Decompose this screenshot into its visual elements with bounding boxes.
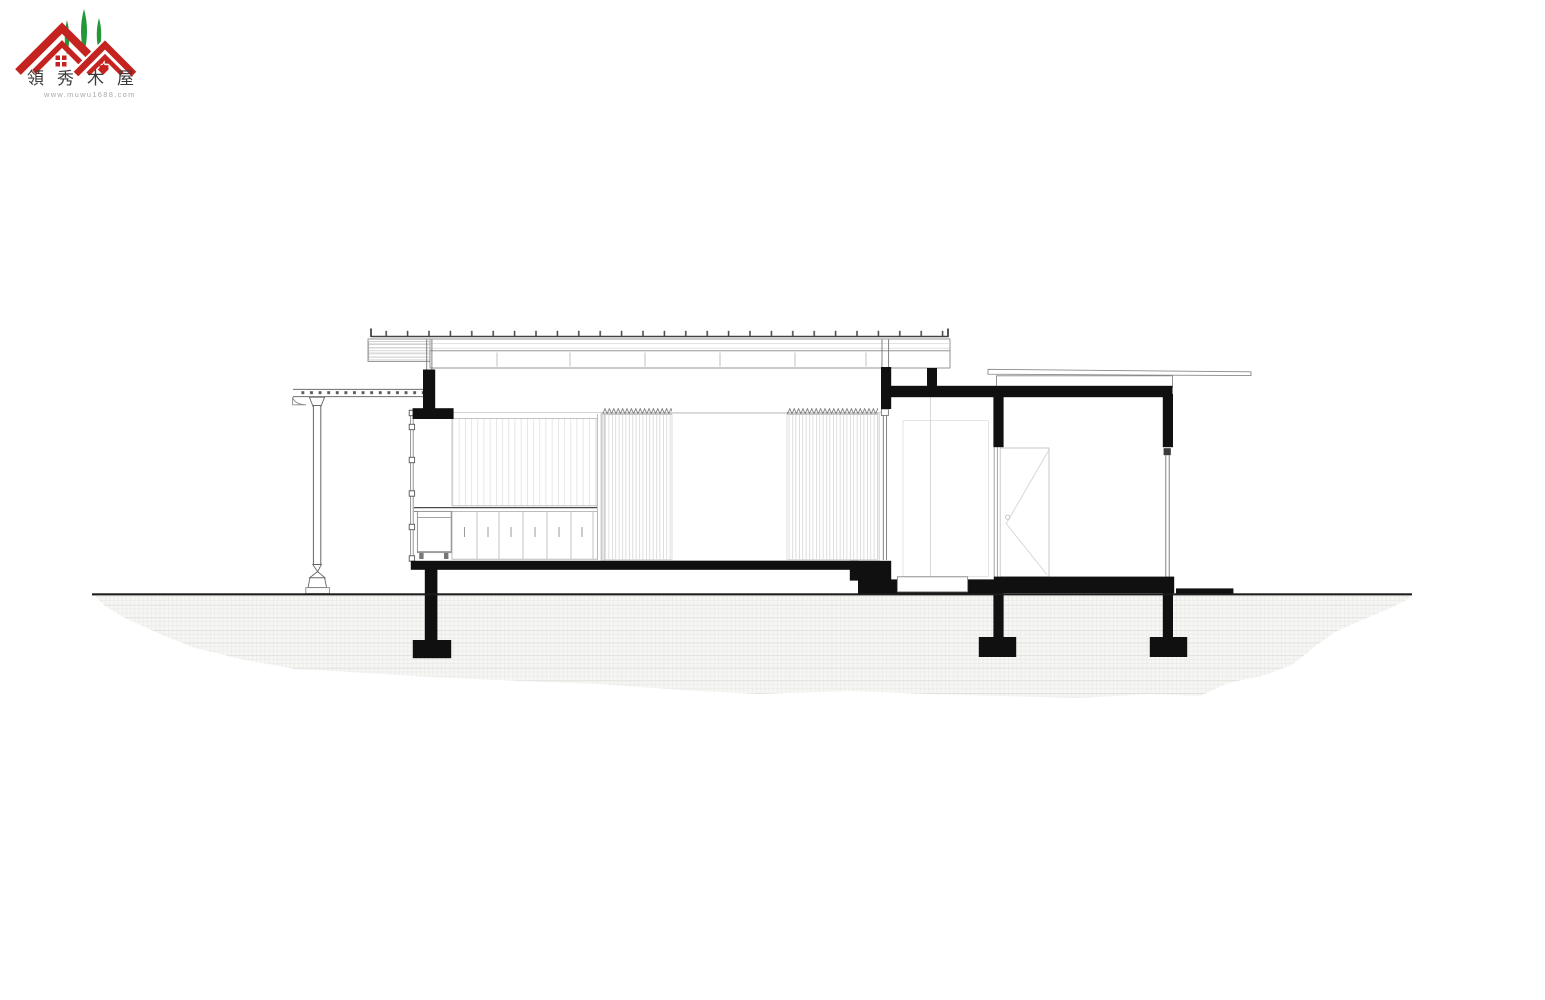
main-roof <box>368 329 950 370</box>
right-wing-beam <box>881 386 1173 397</box>
right-room-right-column <box>1163 394 1173 447</box>
earth-hatch <box>95 596 1411 698</box>
right-room-right-pier <box>1163 592 1173 638</box>
left-wall-glazing <box>411 410 414 561</box>
right-room <box>994 447 1171 577</box>
main-floor-slab <box>411 561 859 570</box>
right-window-glazing <box>1166 455 1169 577</box>
ground-line <box>92 593 1412 595</box>
pergola-corbel <box>293 397 306 405</box>
door-frame <box>994 447 997 577</box>
entry-step-block <box>897 577 967 592</box>
roof-left-overhang <box>369 342 430 361</box>
right-room-left-column <box>993 394 1003 447</box>
pergola-base-plinth <box>308 578 327 588</box>
main-pier <box>425 568 438 641</box>
main-building-interior <box>409 408 888 561</box>
pergola-post <box>313 406 320 565</box>
left-wall-fixings <box>409 410 414 561</box>
curtain-hooks <box>787 408 878 414</box>
curtain-hooks <box>603 408 672 414</box>
roof-fascia-band <box>430 351 950 368</box>
blueprint-page: 領秀木屋 www.muwu1688.com <box>0 0 1545 1000</box>
main-left-column <box>423 370 435 410</box>
pergola-post-base-joint <box>310 565 325 578</box>
pergola-footing <box>306 588 330 594</box>
vestibule <box>903 397 988 576</box>
right-room-left-pier <box>993 592 1003 638</box>
roof-link-stub <box>927 368 937 387</box>
roof-batten-ticks <box>372 331 947 337</box>
floor-step-edge <box>850 561 891 581</box>
right-room-right-footing <box>1150 637 1187 657</box>
left-column-capital <box>413 408 454 419</box>
right-wall-glazing <box>883 415 886 560</box>
right-wing-roof <box>988 369 1251 387</box>
door-leaf <box>1000 448 1049 577</box>
base-cabinets <box>452 511 597 559</box>
main-footing <box>413 640 451 658</box>
panelled-wall <box>452 418 597 505</box>
pergola-rafter-dots <box>297 391 429 394</box>
curtain-right <box>787 408 878 559</box>
window-head-block <box>1164 448 1171 455</box>
right-room-left-footing <box>979 637 1016 657</box>
section-drawing <box>0 0 1545 1000</box>
main-right-column <box>881 367 891 409</box>
right-room-floor-slab <box>994 577 1174 594</box>
right-roof-plane <box>988 369 1251 375</box>
curtain-left <box>603 408 672 559</box>
sectioned-cabinet <box>417 511 451 559</box>
